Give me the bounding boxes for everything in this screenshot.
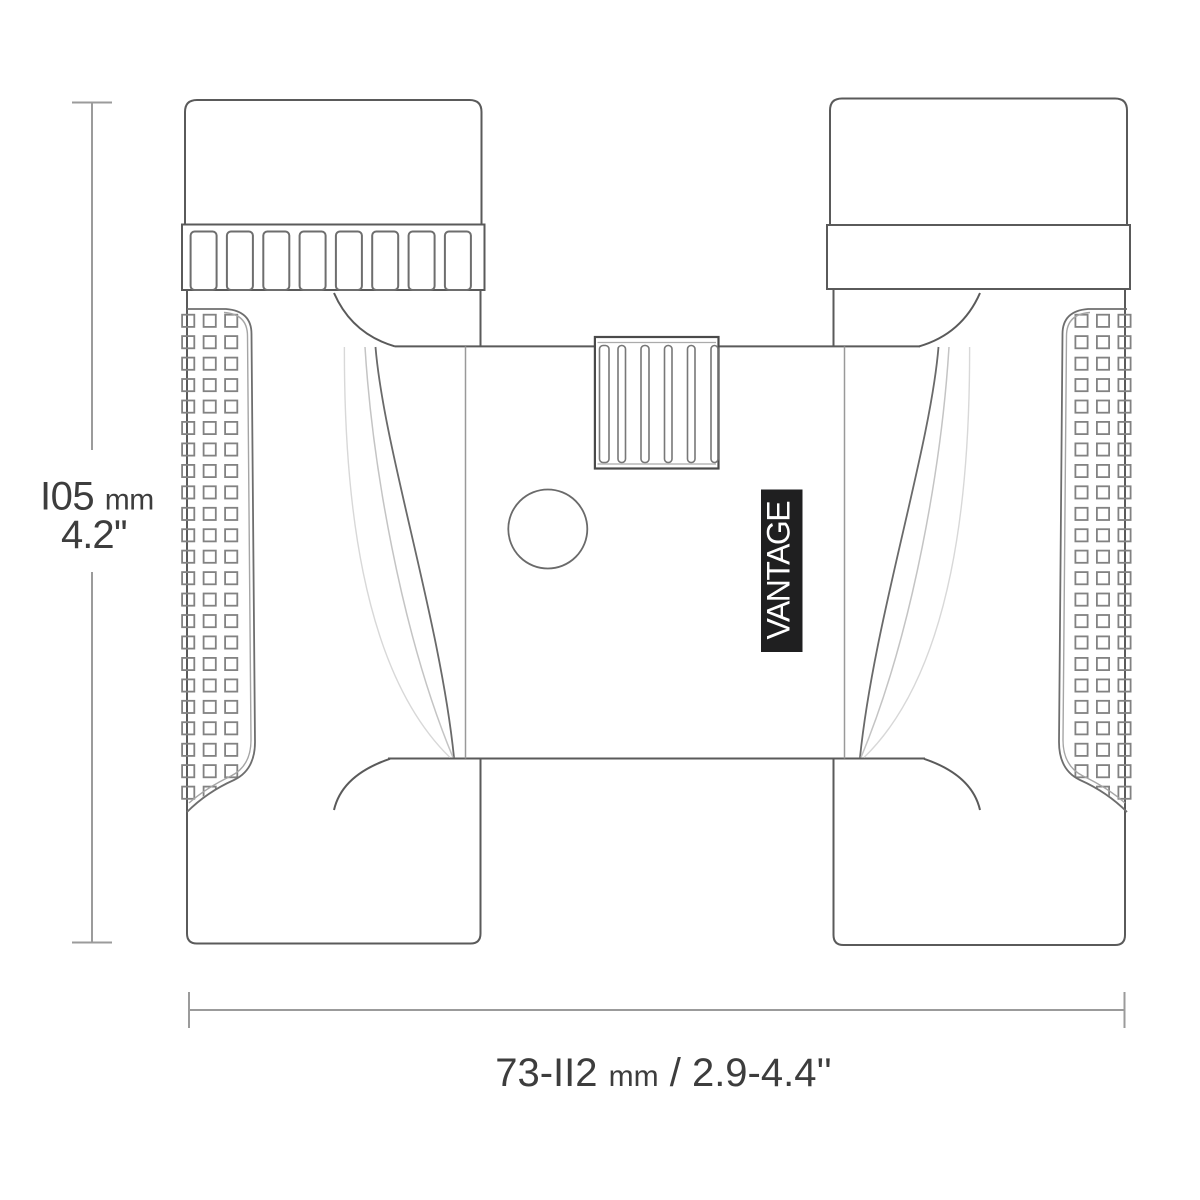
svg-text:73-II2 mm / 2.9-4.4'': 73-II2 mm / 2.9-4.4'' xyxy=(495,1051,832,1095)
svg-text:VANTAGE: VANTAGE xyxy=(761,502,797,640)
svg-text:4.2'': 4.2'' xyxy=(61,513,127,557)
